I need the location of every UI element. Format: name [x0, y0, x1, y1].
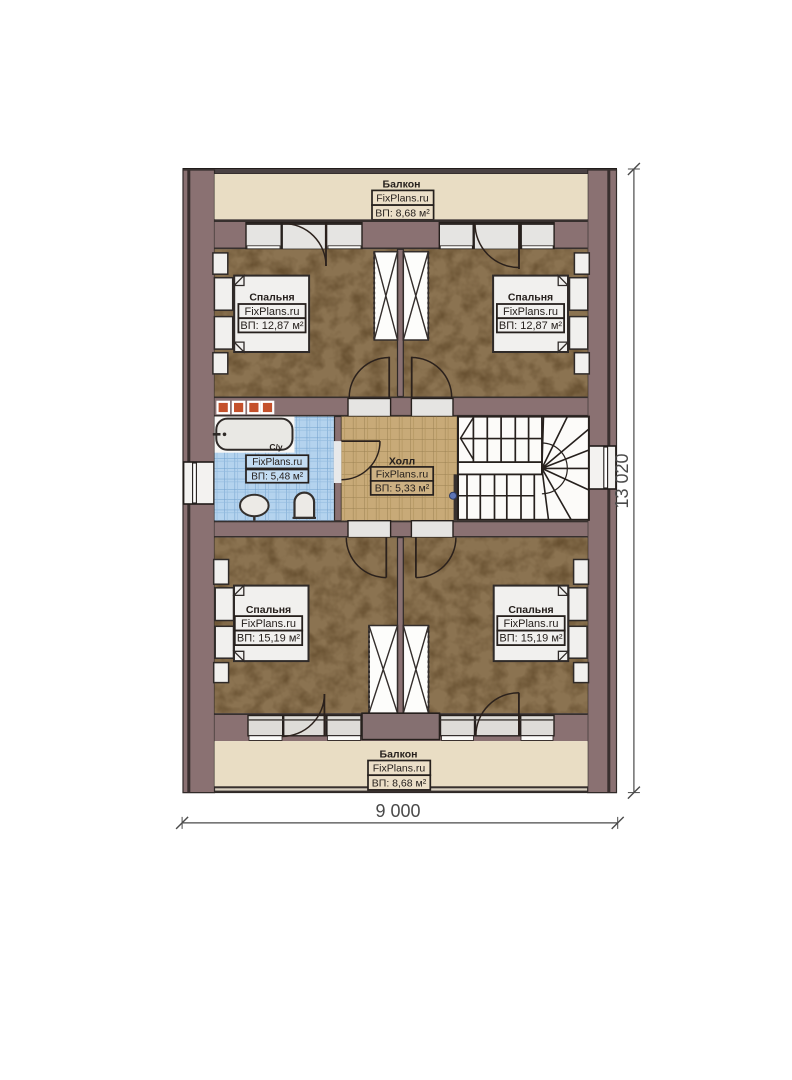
svg-text:FixPlans.ru: FixPlans.ru	[376, 193, 429, 205]
svg-text:13 020: 13 020	[612, 453, 632, 508]
svg-text:ВП: 15,19 м²: ВП: 15,19 м²	[499, 633, 563, 645]
svg-text:Спальня: Спальня	[249, 292, 294, 304]
svg-text:ВП: 12,87 м²: ВП: 12,87 м²	[499, 320, 563, 332]
svg-text:FixPlans.ru: FixPlans.ru	[241, 618, 296, 630]
svg-text:FixPlans.ru: FixPlans.ru	[373, 763, 426, 775]
svg-text:FixPlans.ru: FixPlans.ru	[376, 469, 429, 481]
svg-text:ВП: 8,68 м²: ВП: 8,68 м²	[372, 777, 427, 789]
svg-text:FixPlans.ru: FixPlans.ru	[252, 457, 302, 468]
svg-text:ВП: 15,19 м²: ВП: 15,19 м²	[237, 633, 301, 645]
svg-text:FixPlans.ru: FixPlans.ru	[503, 618, 558, 630]
svg-text:ВП: 8,68 м²: ВП: 8,68 м²	[375, 207, 430, 219]
svg-text:Балкон: Балкон	[383, 179, 421, 191]
svg-text:Балкон: Балкон	[380, 749, 418, 761]
svg-text:ВП: 12,87 м²: ВП: 12,87 м²	[240, 320, 304, 332]
svg-text:ВП: 5,33 м²: ВП: 5,33 м²	[375, 483, 430, 495]
svg-text:Спальня: Спальня	[508, 604, 553, 616]
svg-text:FixPlans.ru: FixPlans.ru	[503, 306, 558, 318]
svg-text:С/у: С/у	[269, 442, 283, 452]
svg-text:FixPlans.ru: FixPlans.ru	[244, 306, 299, 318]
svg-text:Спальня: Спальня	[508, 292, 553, 304]
svg-text:Спальня: Спальня	[246, 604, 291, 616]
svg-text:Холл: Холл	[389, 456, 415, 468]
svg-text:9 000: 9 000	[375, 801, 420, 821]
svg-text:ВП: 5,48 м²: ВП: 5,48 м²	[251, 472, 304, 483]
